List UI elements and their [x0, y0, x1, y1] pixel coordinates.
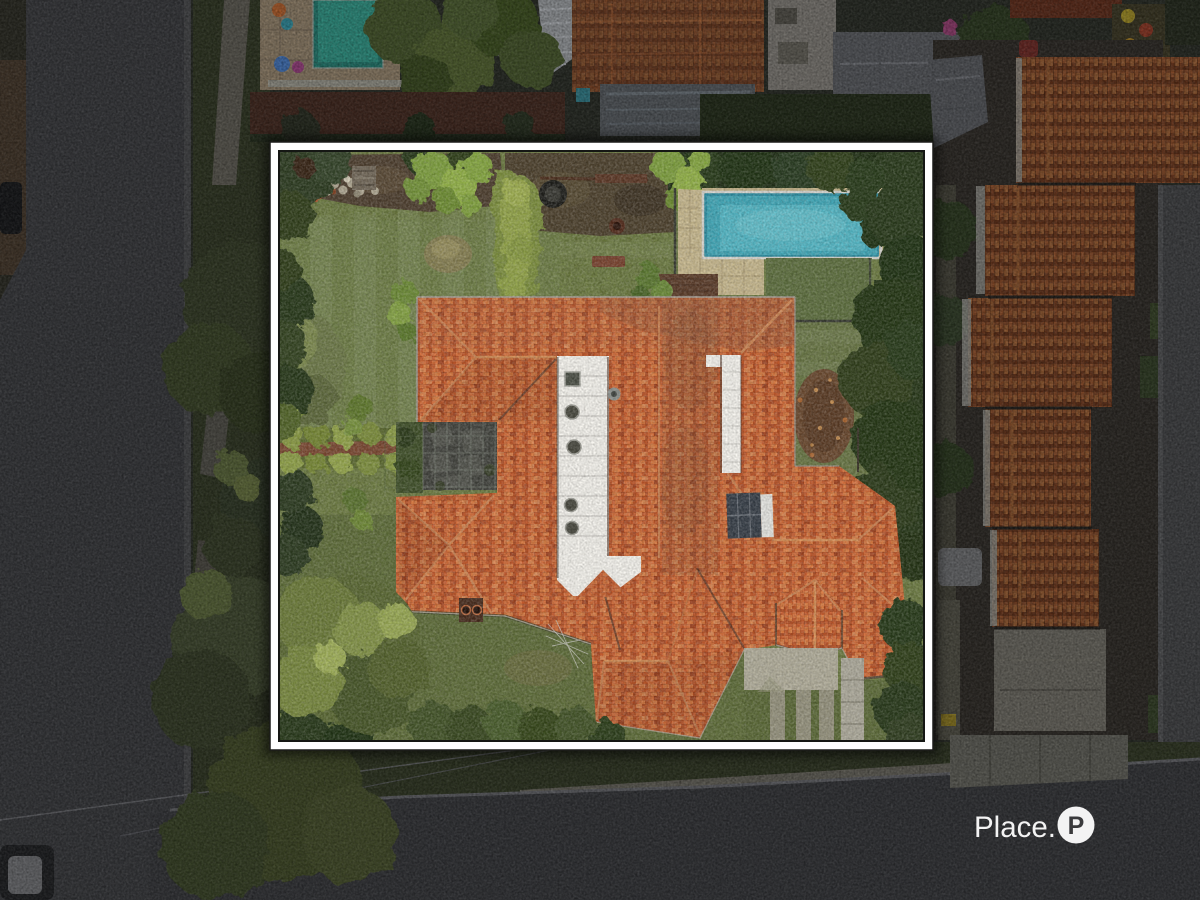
svg-text:Place.: Place. — [974, 811, 1056, 844]
svg-text:P: P — [1068, 812, 1085, 840]
